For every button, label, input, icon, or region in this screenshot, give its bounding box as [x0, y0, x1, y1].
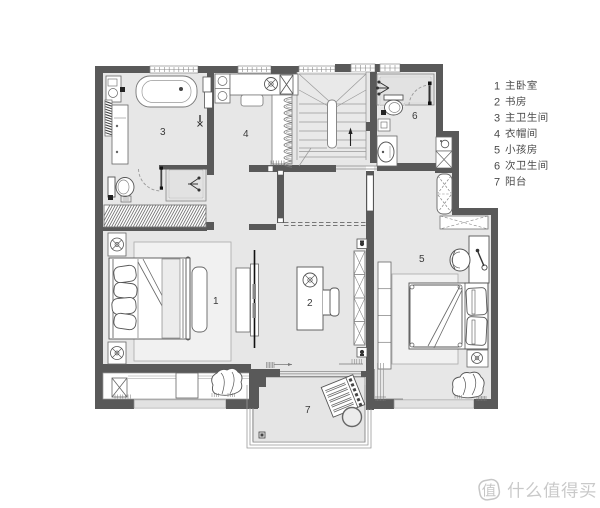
svg-text:5: 5	[419, 254, 425, 265]
svg-text:4: 4	[494, 129, 500, 141]
svg-text:6: 6	[412, 111, 418, 122]
svg-text:1: 1	[494, 81, 500, 93]
svg-text:5: 5	[494, 145, 500, 157]
svg-text:4: 4	[243, 129, 249, 140]
svg-text:3: 3	[160, 127, 166, 138]
svg-text:2: 2	[494, 97, 500, 109]
svg-text:1: 1	[213, 296, 219, 307]
svg-text:7: 7	[494, 177, 500, 189]
svg-text:3: 3	[494, 113, 500, 125]
svg-text:7: 7	[305, 405, 311, 416]
svg-text:6: 6	[494, 161, 500, 173]
svg-text:2: 2	[307, 298, 313, 309]
